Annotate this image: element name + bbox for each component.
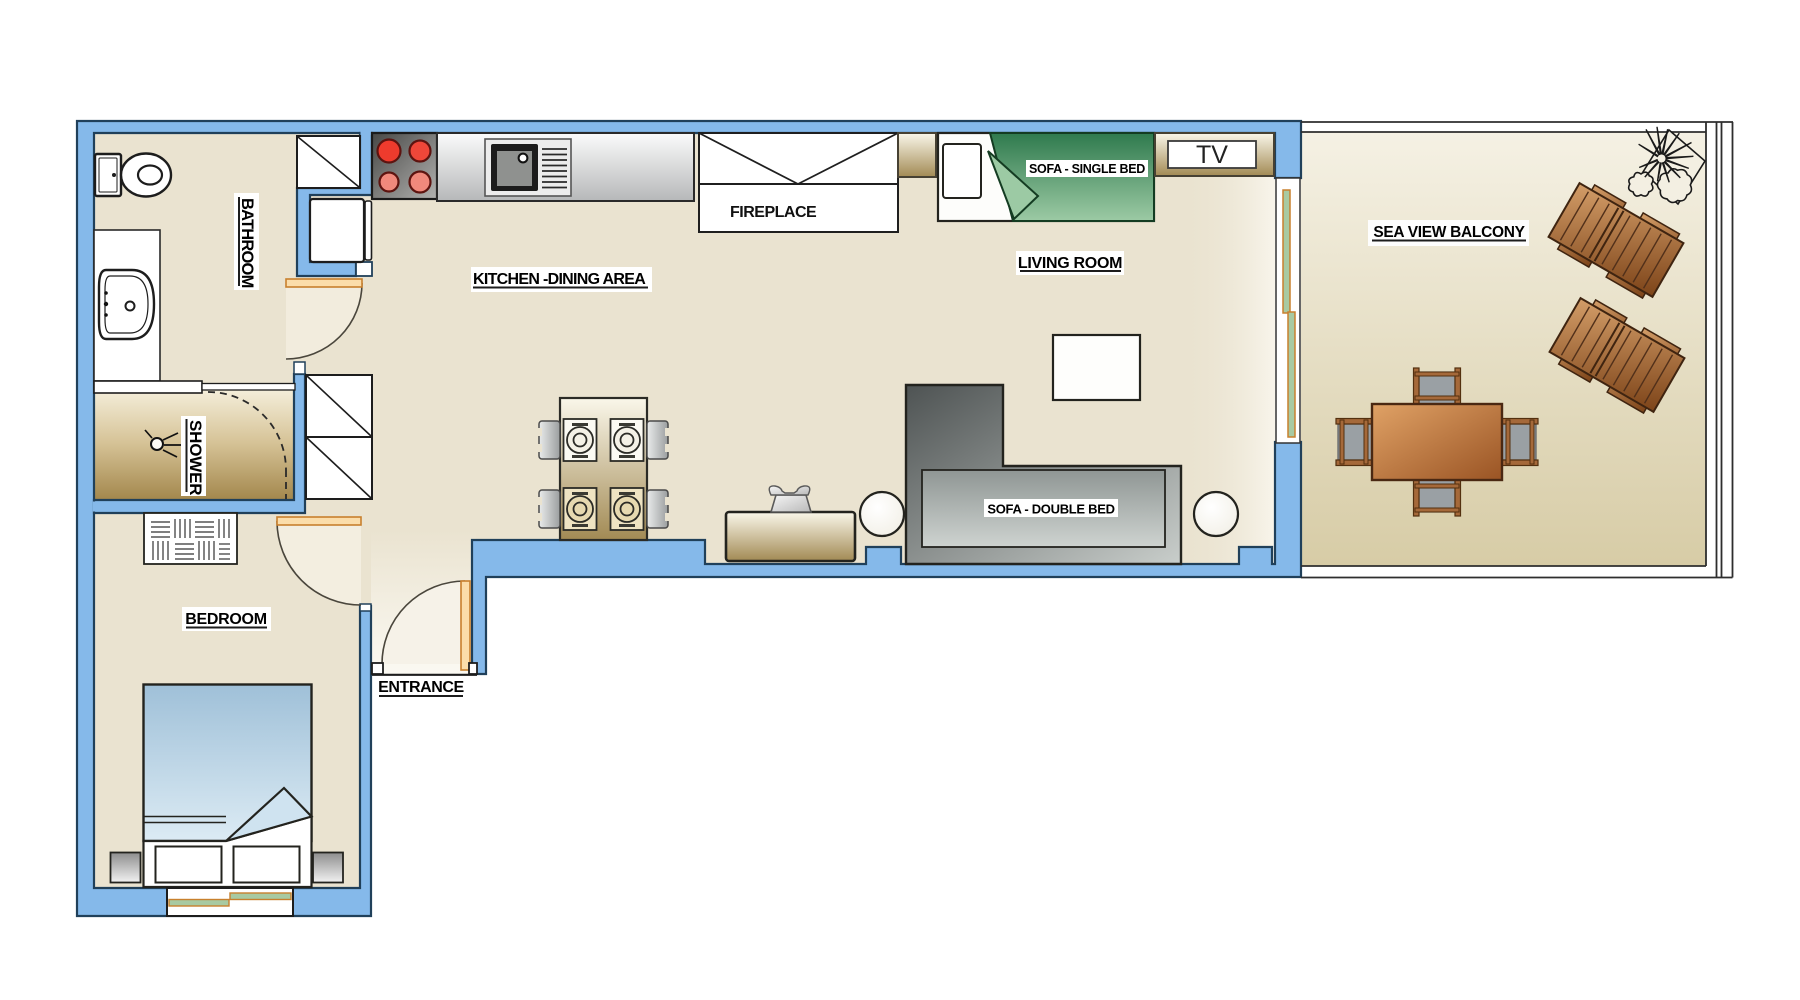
svg-text:FIREPLACE: FIREPLACE	[730, 204, 817, 221]
svg-text:SHOWER: SHOWER	[186, 420, 205, 495]
svg-text:SOFA - DOUBLE BED: SOFA - DOUBLE BED	[987, 502, 1114, 517]
svg-text:KITCHEN -DINING AREA: KITCHEN -DINING AREA	[473, 271, 646, 288]
svg-text:SOFA - SINGLE BED: SOFA - SINGLE BED	[1029, 162, 1145, 176]
svg-text:BEDROOM: BEDROOM	[185, 611, 266, 628]
svg-text:BATHROOM: BATHROOM	[238, 198, 256, 288]
svg-text:SEA VIEW BALCONY: SEA VIEW BALCONY	[1373, 224, 1525, 241]
svg-text:ENTRANCE: ENTRANCE	[378, 679, 464, 696]
svg-text:LIVING ROOM: LIVING ROOM	[1018, 255, 1122, 272]
svg-text:TV: TV	[1196, 141, 1228, 169]
